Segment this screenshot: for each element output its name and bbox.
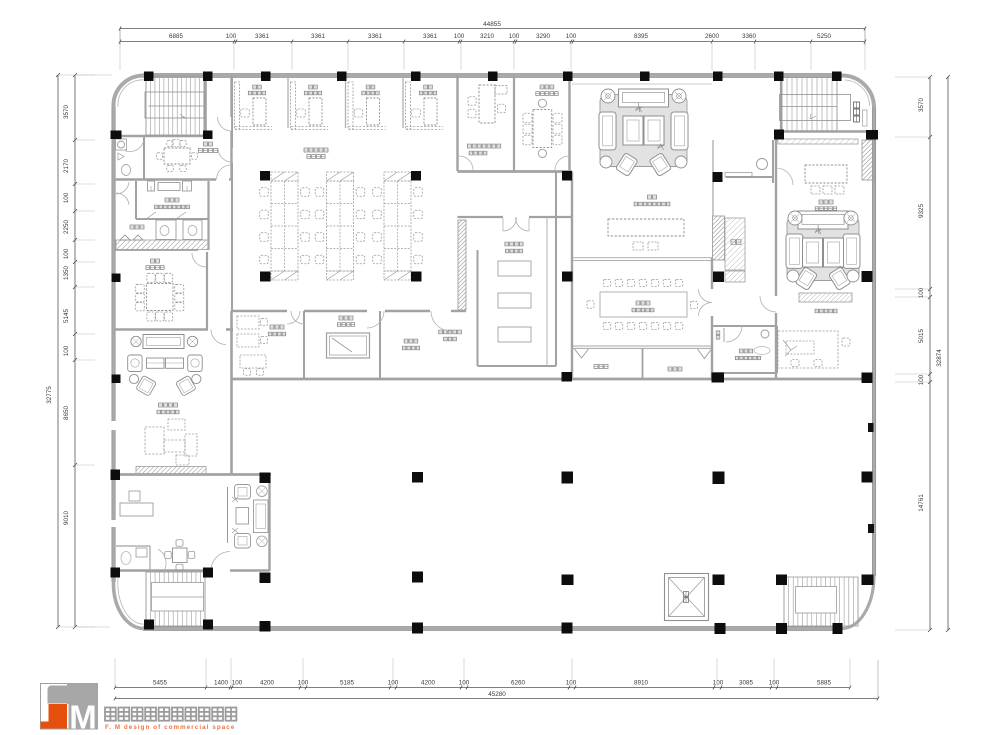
svg-text:100: 100 bbox=[63, 345, 70, 356]
svg-text:100: 100 bbox=[566, 33, 577, 40]
svg-text:5455: 5455 bbox=[153, 680, 168, 687]
svg-text:100: 100 bbox=[63, 192, 70, 203]
svg-text:5250: 5250 bbox=[817, 33, 832, 40]
svg-text:9325: 9325 bbox=[918, 204, 925, 219]
svg-text:32874: 32874 bbox=[936, 349, 943, 367]
svg-text:6885: 6885 bbox=[169, 33, 184, 40]
svg-text:3085: 3085 bbox=[739, 680, 754, 687]
svg-text:4200: 4200 bbox=[260, 680, 275, 687]
svg-text:M: M bbox=[69, 699, 97, 735]
svg-text:100: 100 bbox=[454, 33, 465, 40]
svg-text:3570: 3570 bbox=[63, 105, 70, 120]
svg-text:2250: 2250 bbox=[63, 220, 70, 235]
svg-text:8650: 8650 bbox=[63, 406, 70, 421]
svg-text:100: 100 bbox=[63, 248, 70, 259]
svg-text:5185: 5185 bbox=[340, 680, 355, 687]
svg-text:1400: 1400 bbox=[214, 680, 229, 687]
svg-text:100: 100 bbox=[232, 680, 243, 687]
svg-text:8395: 8395 bbox=[634, 33, 649, 40]
svg-text:5145: 5145 bbox=[63, 309, 70, 324]
svg-text:1350: 1350 bbox=[63, 266, 70, 281]
svg-text:5015: 5015 bbox=[918, 329, 925, 344]
svg-text:3570: 3570 bbox=[918, 98, 925, 113]
svg-text:100: 100 bbox=[509, 33, 520, 40]
svg-text:8910: 8910 bbox=[634, 680, 649, 687]
svg-text:3361: 3361 bbox=[423, 33, 438, 40]
svg-text:2600: 2600 bbox=[705, 33, 720, 40]
svg-text:4200: 4200 bbox=[421, 680, 436, 687]
svg-text:3361: 3361 bbox=[368, 33, 383, 40]
svg-text:5885: 5885 bbox=[817, 680, 832, 687]
svg-text:3360: 3360 bbox=[742, 33, 757, 40]
svg-text:3210: 3210 bbox=[480, 33, 495, 40]
svg-text:14761: 14761 bbox=[918, 494, 925, 512]
svg-text:100: 100 bbox=[918, 374, 925, 385]
svg-text:100: 100 bbox=[713, 680, 724, 687]
svg-text:100: 100 bbox=[566, 680, 577, 687]
svg-text:45280: 45280 bbox=[488, 691, 506, 698]
svg-text:2170: 2170 bbox=[63, 159, 70, 174]
svg-text:44855: 44855 bbox=[483, 21, 501, 28]
svg-text:6260: 6260 bbox=[511, 680, 526, 687]
svg-text:9010: 9010 bbox=[63, 511, 70, 526]
svg-text:3361: 3361 bbox=[255, 33, 270, 40]
svg-text:100: 100 bbox=[226, 33, 237, 40]
svg-text:3290: 3290 bbox=[536, 33, 551, 40]
svg-text:32775: 32775 bbox=[46, 386, 53, 404]
svg-text:F. M design of commercial spac: F. M design of commercial space bbox=[105, 724, 235, 731]
svg-text:3361: 3361 bbox=[311, 33, 326, 40]
